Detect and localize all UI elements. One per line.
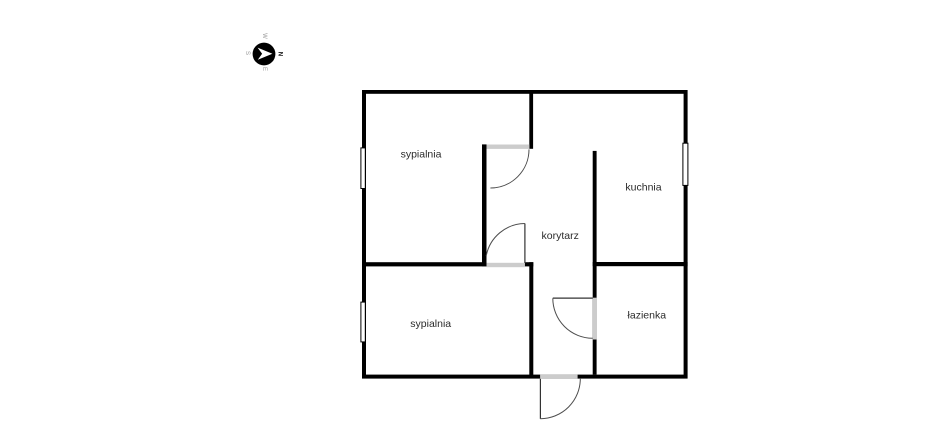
svg-text:sypialnia: sypialnia: [401, 148, 442, 160]
svg-text:W: W: [261, 33, 267, 39]
svg-text:kuchnia: kuchnia: [625, 181, 661, 193]
svg-text:sypialnia: sypialnia: [410, 318, 451, 330]
svg-text:korytarz: korytarz: [542, 230, 579, 242]
svg-text:N: N: [277, 52, 284, 57]
svg-text:łazienka: łazienka: [628, 310, 667, 322]
svg-text:S: S: [244, 51, 250, 55]
svg-text:E: E: [261, 67, 267, 71]
